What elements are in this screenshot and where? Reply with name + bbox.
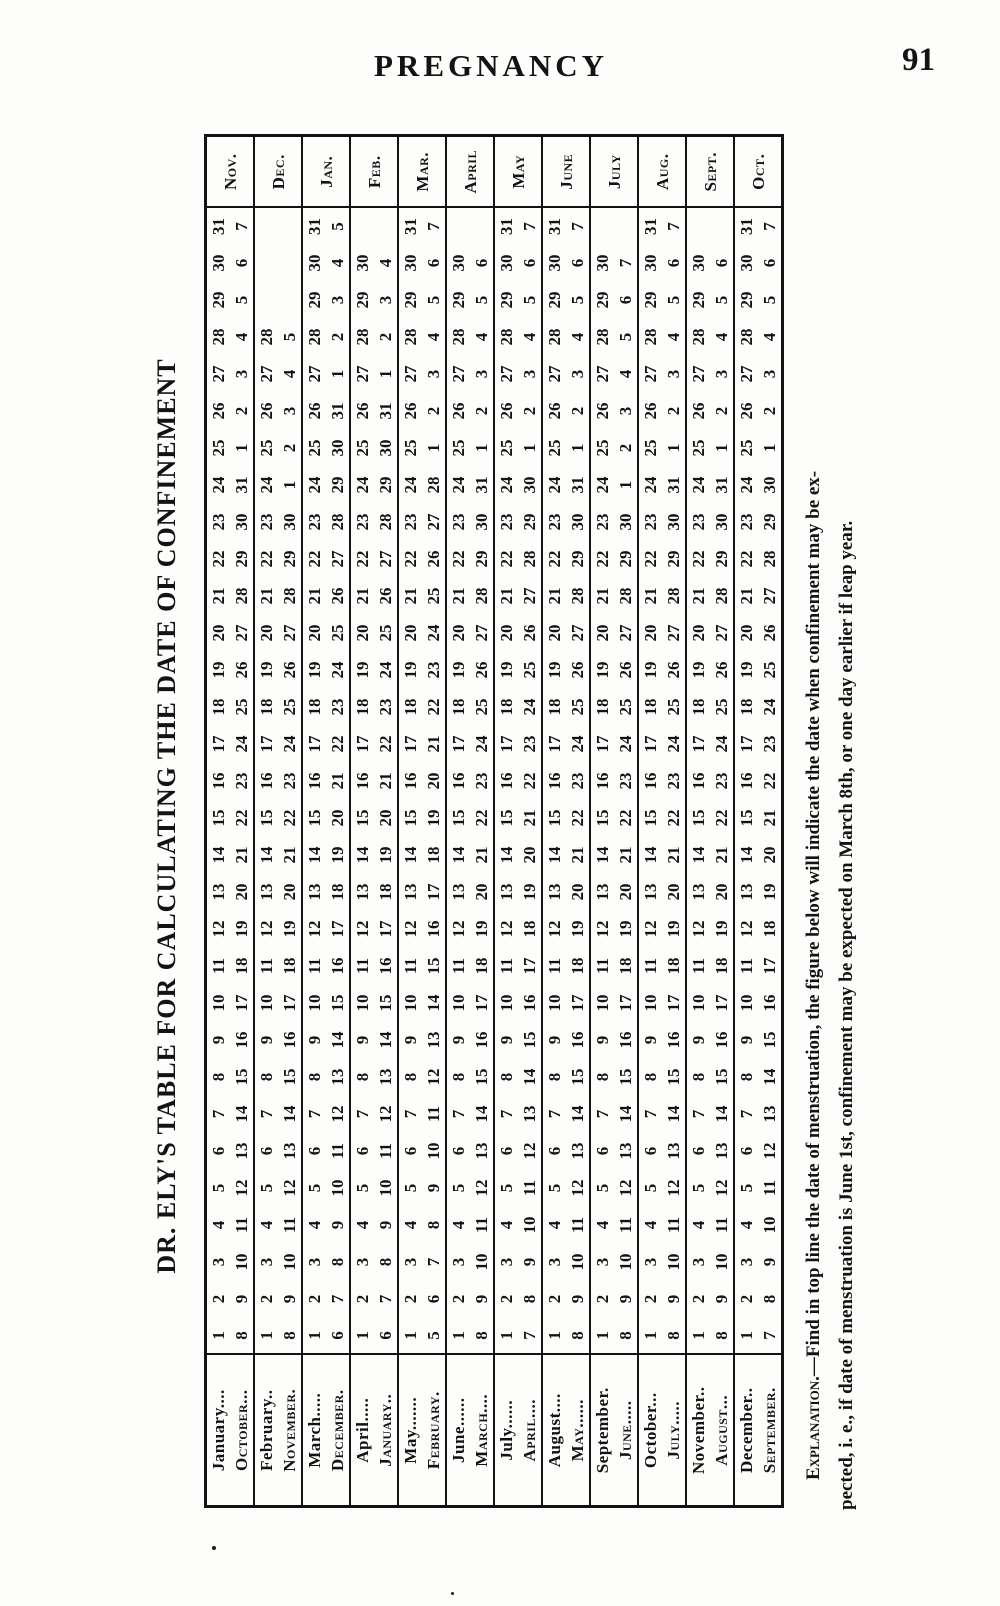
menses-day-cell: 3	[350, 1244, 374, 1281]
menses-day-cell: 21	[494, 578, 518, 615]
overflow-month-label: May	[494, 136, 542, 208]
confinement-date-cell: 25	[614, 689, 638, 726]
confinement-date-cell: 26	[566, 652, 590, 689]
confinement-date-cell: 29	[230, 541, 254, 578]
menses-day-cell: 13	[302, 874, 326, 911]
confinement-date-cell: 13	[518, 1096, 542, 1133]
menses-day-cell: 20	[398, 615, 422, 652]
confinement-date-cell: 19	[662, 911, 686, 948]
confinement-date-cell: 24	[710, 726, 734, 763]
confinement-date-cell: 4	[758, 319, 783, 356]
menses-day-cell: 28	[542, 319, 566, 356]
confinement-date-cell: 24	[470, 726, 494, 763]
confinement-date-cell: 8	[470, 1318, 494, 1355]
menses-day-cell: 26	[398, 393, 422, 430]
menses-day-cell: 2	[350, 1281, 374, 1318]
menses-day-cell: 26	[590, 393, 614, 430]
menses-day-cell: 4	[398, 1207, 422, 1244]
confinement-date-cell: 14	[470, 1096, 494, 1133]
menses-row-11: November..123456789101112131415161718192…	[686, 136, 710, 1507]
menses-day-cell: 22	[446, 541, 470, 578]
menses-day-cell: 11	[398, 948, 422, 985]
menses-day-cell: 20	[590, 615, 614, 652]
confinement-date-cell: 6	[566, 245, 590, 282]
menses-day-cell: 19	[686, 652, 710, 689]
confinement-date-cell: 7	[518, 208, 542, 245]
menses-day-cell: 27	[638, 356, 662, 393]
empty-cell	[590, 208, 614, 245]
confinement-date-cell: 5	[758, 282, 783, 319]
confinement-date-cell: 4	[662, 319, 686, 356]
menses-day-cell: 27	[734, 356, 758, 393]
confinement-date-cell: 18	[566, 948, 590, 985]
menses-day-cell: 22	[254, 541, 278, 578]
menses-day-cell: 19	[542, 652, 566, 689]
confinement-date-cell: 8	[566, 1318, 590, 1355]
menses-day-cell: 1	[446, 1318, 470, 1355]
menses-day-cell: 14	[686, 837, 710, 874]
menses-day-cell: 17	[494, 726, 518, 763]
table-title: DR. ELY'S TABLE FOR CALCULATING THE DATE…	[152, 120, 182, 1512]
menses-day-cell: 4	[638, 1207, 662, 1244]
menses-day-cell: 31	[302, 208, 326, 245]
confinement-date-cell: 14	[710, 1096, 734, 1133]
confinement-date-cell: 10	[422, 1133, 446, 1170]
confinement-date-cell: 3	[758, 356, 783, 393]
confinement-date-cell: 25	[710, 689, 734, 726]
menses-day-cell: 15	[254, 800, 278, 837]
confinement-date-cell: 17	[374, 911, 398, 948]
confinement-date-cell: 13	[230, 1133, 254, 1170]
menses-day-cell: 16	[302, 763, 326, 800]
confinement-date-cell: 23	[710, 763, 734, 800]
menses-day-cell: 29	[302, 282, 326, 319]
confinement-date-cell: 15	[566, 1059, 590, 1096]
menses-day-cell: 4	[350, 1207, 374, 1244]
menses-day-cell: 17	[350, 726, 374, 763]
menses-day-cell: 20	[206, 615, 231, 652]
confinement-date-cell: 10	[278, 1244, 302, 1281]
menses-day-cell: 3	[734, 1244, 758, 1281]
menses-day-cell: 23	[206, 504, 231, 541]
menses-day-cell: 5	[350, 1170, 374, 1207]
menses-day-cell: 14	[734, 837, 758, 874]
menses-day-cell: 11	[686, 948, 710, 985]
menses-day-cell: 20	[542, 615, 566, 652]
confinement-date-cell: 18	[518, 911, 542, 948]
menses-day-cell: 24	[398, 467, 422, 504]
overflow-month-label: Aug.	[638, 136, 686, 208]
confinement-month-cell: May......	[566, 1355, 590, 1507]
confinement-date-cell: 6	[614, 282, 638, 319]
menses-day-cell: 19	[590, 652, 614, 689]
confinement-date-cell: 20	[758, 837, 783, 874]
menses-day-cell: 12	[302, 911, 326, 948]
confinement-date-cell: 22	[326, 726, 350, 763]
menses-day-cell: 23	[734, 504, 758, 541]
menses-day-cell: 20	[638, 615, 662, 652]
menses-day-cell: 29	[350, 282, 374, 319]
confinement-row-7: April....7891011121314151617181920212223…	[518, 136, 542, 1507]
confinement-date-cell: 7	[566, 208, 590, 245]
confinement-date-cell: 24	[230, 726, 254, 763]
confinement-date-cell: 8	[710, 1318, 734, 1355]
confinement-date-cell: 22	[470, 800, 494, 837]
menses-day-cell: 3	[446, 1244, 470, 1281]
confinement-date-cell: 26	[326, 578, 350, 615]
menses-day-cell: 6	[638, 1133, 662, 1170]
menses-day-cell: 16	[254, 763, 278, 800]
empty-cell	[254, 282, 278, 319]
confinement-date-cell: 27	[326, 541, 350, 578]
menses-day-cell: 9	[494, 1022, 518, 1059]
menses-day-cell: 25	[638, 430, 662, 467]
menses-day-cell: 16	[398, 763, 422, 800]
menses-row-10: October...123456789101112131415161718192…	[638, 136, 662, 1507]
confinement-date-cell: 26	[278, 652, 302, 689]
confinement-date-cell: 5	[470, 282, 494, 319]
menses-day-cell: 3	[542, 1244, 566, 1281]
confinement-date-cell: 17	[566, 985, 590, 1022]
empty-cell	[278, 208, 302, 245]
menses-day-cell: 6	[494, 1133, 518, 1170]
confinement-row-1: October...891011121314151617181920212223…	[230, 136, 254, 1507]
menses-day-cell: 14	[638, 837, 662, 874]
confinement-date-cell: 2	[374, 319, 398, 356]
menses-day-cell: 2	[446, 1281, 470, 1318]
confinement-date-cell: 18	[614, 948, 638, 985]
menses-day-cell: 18	[590, 689, 614, 726]
menses-day-cell: 18	[542, 689, 566, 726]
menses-day-cell: 9	[686, 1022, 710, 1059]
menses-day-cell: 8	[446, 1059, 470, 1096]
confinement-date-cell: 10	[662, 1244, 686, 1281]
confinement-date-cell: 27	[758, 578, 783, 615]
confinement-date-cell: 21	[662, 837, 686, 874]
menses-day-cell: 30	[446, 245, 470, 282]
confinement-date-cell: 8	[662, 1318, 686, 1355]
confinement-date-cell: 30	[710, 504, 734, 541]
menses-day-cell: 15	[206, 800, 231, 837]
confinement-date-cell: 21	[758, 800, 783, 837]
confinement-date-cell: 14	[758, 1059, 783, 1096]
menses-day-cell: 1	[638, 1318, 662, 1355]
menses-day-cell: 15	[542, 800, 566, 837]
menses-day-cell: 18	[734, 689, 758, 726]
menses-day-cell: 9	[206, 1022, 231, 1059]
confinement-date-cell: 26	[374, 578, 398, 615]
confinement-date-cell: 20	[710, 874, 734, 911]
confinement-date-cell: 26	[614, 652, 638, 689]
menses-day-cell: 13	[686, 874, 710, 911]
menses-day-cell: 2	[542, 1281, 566, 1318]
confinement-date-cell: 25	[278, 689, 302, 726]
confinement-date-cell: 22	[566, 800, 590, 837]
overflow-month-label: Feb.	[350, 136, 398, 208]
menses-day-cell: 26	[734, 393, 758, 430]
menses-day-cell: 20	[350, 615, 374, 652]
menses-day-cell: 5	[446, 1170, 470, 1207]
confinement-date-cell: 13	[614, 1133, 638, 1170]
menses-day-cell: 27	[350, 356, 374, 393]
menses-day-cell: 20	[734, 615, 758, 652]
confinement-date-cell: 31	[326, 393, 350, 430]
confinement-date-cell: 19	[374, 837, 398, 874]
menses-row-12: December..123456789101112131415161718192…	[734, 136, 758, 1507]
menses-day-cell: 17	[302, 726, 326, 763]
confinement-date-cell: 24	[374, 652, 398, 689]
empty-cell	[470, 208, 494, 245]
menses-day-cell: 30	[494, 245, 518, 282]
menses-day-cell: 10	[494, 985, 518, 1022]
menses-day-cell: 9	[734, 1022, 758, 1059]
confinement-date-cell: 15	[230, 1059, 254, 1096]
confinement-date-cell: 1	[758, 430, 783, 467]
confinement-date-cell: 6	[230, 245, 254, 282]
confinement-date-cell: 26	[758, 615, 783, 652]
menses-day-cell: 7	[206, 1096, 231, 1133]
confinement-date-cell: 21	[710, 837, 734, 874]
confinement-date-cell: 18	[422, 837, 446, 874]
confinement-date-cell: 5	[614, 319, 638, 356]
confinement-date-cell: 6	[470, 245, 494, 282]
scan-speck	[451, 1592, 454, 1595]
confinement-date-cell: 4	[278, 356, 302, 393]
menses-day-cell: 1	[686, 1318, 710, 1355]
menses-day-cell: 19	[302, 652, 326, 689]
confinement-date-cell: 18	[374, 874, 398, 911]
menses-day-cell: 7	[494, 1096, 518, 1133]
menses-day-cell: 5	[494, 1170, 518, 1207]
menses-day-cell: 7	[302, 1096, 326, 1133]
confinement-date-cell: 21	[230, 837, 254, 874]
confinement-date-cell: 10	[710, 1244, 734, 1281]
menses-day-cell: 26	[302, 393, 326, 430]
confinement-date-cell: 29	[470, 541, 494, 578]
confinement-date-cell: 8	[614, 1318, 638, 1355]
menses-day-cell: 31	[734, 208, 758, 245]
menses-day-cell: 13	[494, 874, 518, 911]
menses-day-cell: 1	[494, 1318, 518, 1355]
menses-day-cell: 9	[350, 1022, 374, 1059]
menses-day-cell: 22	[350, 541, 374, 578]
menses-day-cell: 22	[206, 541, 231, 578]
menses-day-cell: 30	[302, 245, 326, 282]
menses-day-cell: 23	[350, 504, 374, 541]
confinement-month-cell: August...	[710, 1355, 734, 1507]
menses-day-cell: 21	[254, 578, 278, 615]
menses-day-cell: 12	[542, 911, 566, 948]
confinement-date-cell: 27	[230, 615, 254, 652]
menses-day-cell: 4	[446, 1207, 470, 1244]
confinement-date-cell: 23	[518, 726, 542, 763]
confinement-date-cell: 6	[422, 1281, 446, 1318]
confinement-date-cell: 9	[278, 1281, 302, 1318]
confinement-date-cell: 24	[422, 615, 446, 652]
menses-day-cell: 29	[638, 282, 662, 319]
menses-row-7: July......123456789101112131415161718192…	[494, 136, 518, 1507]
menses-day-cell: 14	[398, 837, 422, 874]
confinement-date-cell: 23	[566, 763, 590, 800]
menses-day-cell: 22	[734, 541, 758, 578]
menses-day-cell: 4	[254, 1207, 278, 1244]
confinement-date-cell: 25	[422, 578, 446, 615]
menses-day-cell: 19	[206, 652, 231, 689]
confinement-date-cell: 30	[230, 504, 254, 541]
confinement-date-cell: 23	[422, 652, 446, 689]
confinement-date-cell: 17	[614, 985, 638, 1022]
confinement-date-cell: 7	[422, 1244, 446, 1281]
confinement-date-cell: 21	[566, 837, 590, 874]
menses-day-cell: 24	[734, 467, 758, 504]
menses-day-cell: 12	[638, 911, 662, 948]
menses-day-cell: 15	[302, 800, 326, 837]
menses-day-cell: 8	[542, 1059, 566, 1096]
confinement-date-cell: 16	[230, 1022, 254, 1059]
confinement-date-cell: 22	[278, 800, 302, 837]
menses-row-3: March.....123456789101112131415161718192…	[302, 136, 326, 1507]
confinement-date-cell: 4	[470, 319, 494, 356]
menses-day-cell: 18	[350, 689, 374, 726]
confinement-date-cell: 2	[518, 393, 542, 430]
menses-day-cell: 9	[638, 1022, 662, 1059]
confinement-date-cell: 20	[278, 874, 302, 911]
confinement-date-cell: 30	[374, 430, 398, 467]
menses-day-cell: 10	[734, 985, 758, 1022]
menses-day-cell: 17	[398, 726, 422, 763]
menses-day-cell: 12	[686, 911, 710, 948]
confinement-date-cell: 1	[326, 356, 350, 393]
confinement-date-cell: 11	[470, 1207, 494, 1244]
menses-row-8: August....123456789101112131415161718192…	[542, 136, 566, 1507]
empty-cell	[278, 282, 302, 319]
confinement-date-cell: 3	[710, 356, 734, 393]
confinement-date-cell: 18	[470, 948, 494, 985]
confinement-row-4: January..6789101112131415161718192021222…	[374, 136, 398, 1507]
confinement-date-cell: 30	[470, 504, 494, 541]
confinement-date-cell: 29	[614, 541, 638, 578]
confinement-date-cell: 8	[374, 1244, 398, 1281]
confinement-date-cell: 20	[614, 874, 638, 911]
menses-day-cell: 16	[638, 763, 662, 800]
confinement-date-cell: 4	[614, 356, 638, 393]
confinement-date-cell: 28	[710, 578, 734, 615]
confinement-date-cell: 19	[470, 911, 494, 948]
menses-day-cell: 23	[398, 504, 422, 541]
menses-day-cell: 16	[734, 763, 758, 800]
menses-day-cell: 18	[398, 689, 422, 726]
confinement-date-cell: 26	[422, 541, 446, 578]
menses-day-cell: 2	[590, 1281, 614, 1318]
overflow-month-label: Oct.	[734, 136, 783, 208]
menses-day-cell: 17	[542, 726, 566, 763]
overflow-month-label: April	[446, 136, 494, 208]
menses-day-cell: 12	[590, 911, 614, 948]
confinement-date-cell: 25	[230, 689, 254, 726]
menses-day-cell: 21	[638, 578, 662, 615]
confinement-date-cell: 27	[662, 615, 686, 652]
confinement-date-cell: 23	[374, 689, 398, 726]
menses-day-cell: 29	[494, 282, 518, 319]
confinement-date-cell: 11	[758, 1170, 783, 1207]
confinement-date-cell: 26	[710, 652, 734, 689]
menses-day-cell: 4	[542, 1207, 566, 1244]
confinement-date-cell: 14	[422, 985, 446, 1022]
menses-day-cell: 14	[254, 837, 278, 874]
menses-day-cell: 9	[542, 1022, 566, 1059]
menses-day-cell: 18	[302, 689, 326, 726]
confinement-date-cell: 19	[518, 874, 542, 911]
menses-day-cell: 2	[638, 1281, 662, 1318]
menses-day-cell: 2	[302, 1281, 326, 1318]
empty-cell	[254, 208, 278, 245]
confinement-date-cell: 2	[614, 430, 638, 467]
empty-cell	[446, 208, 470, 245]
menses-month-cell: November..	[686, 1355, 710, 1507]
overflow-month-label: Dec.	[254, 136, 302, 208]
confinement-date-cell: 17	[278, 985, 302, 1022]
confinement-date-cell: 27	[278, 615, 302, 652]
confinement-date-cell: 13	[758, 1096, 783, 1133]
confinement-date-cell: 24	[518, 689, 542, 726]
confinement-date-cell: 12	[710, 1170, 734, 1207]
menses-day-cell: 25	[734, 430, 758, 467]
menses-day-cell: 17	[686, 726, 710, 763]
menses-day-cell: 23	[302, 504, 326, 541]
menses-day-cell: 27	[398, 356, 422, 393]
confinement-date-cell: 30	[614, 504, 638, 541]
menses-day-cell: 7	[638, 1096, 662, 1133]
confinement-date-cell: 25	[758, 652, 783, 689]
confinement-date-cell: 5	[278, 319, 302, 356]
confinement-date-cell: 11	[422, 1096, 446, 1133]
menses-day-cell: 1	[590, 1318, 614, 1355]
menses-day-cell: 20	[686, 615, 710, 652]
confinement-date-cell: 1	[710, 430, 734, 467]
confinement-month-cell: April....	[518, 1355, 542, 1507]
menses-day-cell: 12	[350, 911, 374, 948]
menses-day-cell: 30	[206, 245, 231, 282]
confinement-table: January....12345678910111213141516171819…	[204, 134, 784, 1508]
menses-day-cell: 21	[590, 578, 614, 615]
menses-day-cell: 16	[542, 763, 566, 800]
confinement-date-cell: 28	[518, 541, 542, 578]
menses-day-cell: 2	[734, 1281, 758, 1318]
confinement-date-cell: 15	[374, 985, 398, 1022]
confinement-date-cell: 13	[422, 1022, 446, 1059]
menses-day-cell: 6	[254, 1133, 278, 1170]
menses-day-cell: 23	[590, 504, 614, 541]
menses-day-cell: 10	[206, 985, 231, 1022]
confinement-date-cell: 11	[662, 1207, 686, 1244]
menses-day-cell: 8	[686, 1059, 710, 1096]
menses-day-cell: 28	[446, 319, 470, 356]
confinement-date-cell: 14	[566, 1096, 590, 1133]
confinement-date-cell: 1	[230, 430, 254, 467]
menses-day-cell: 3	[590, 1244, 614, 1281]
confinement-date-cell: 28	[230, 578, 254, 615]
menses-day-cell: 28	[254, 319, 278, 356]
explanation-line-1-text: —Find in top line the date of menstruati…	[803, 471, 824, 1376]
confinement-date-cell: 4	[230, 319, 254, 356]
confinement-date-cell: 1	[422, 430, 446, 467]
confinement-date-cell: 13	[278, 1133, 302, 1170]
menses-day-cell: 27	[542, 356, 566, 393]
menses-day-cell: 7	[398, 1096, 422, 1133]
menses-day-cell: 12	[734, 911, 758, 948]
menses-day-cell: 22	[302, 541, 326, 578]
confinement-date-cell: 30	[278, 504, 302, 541]
